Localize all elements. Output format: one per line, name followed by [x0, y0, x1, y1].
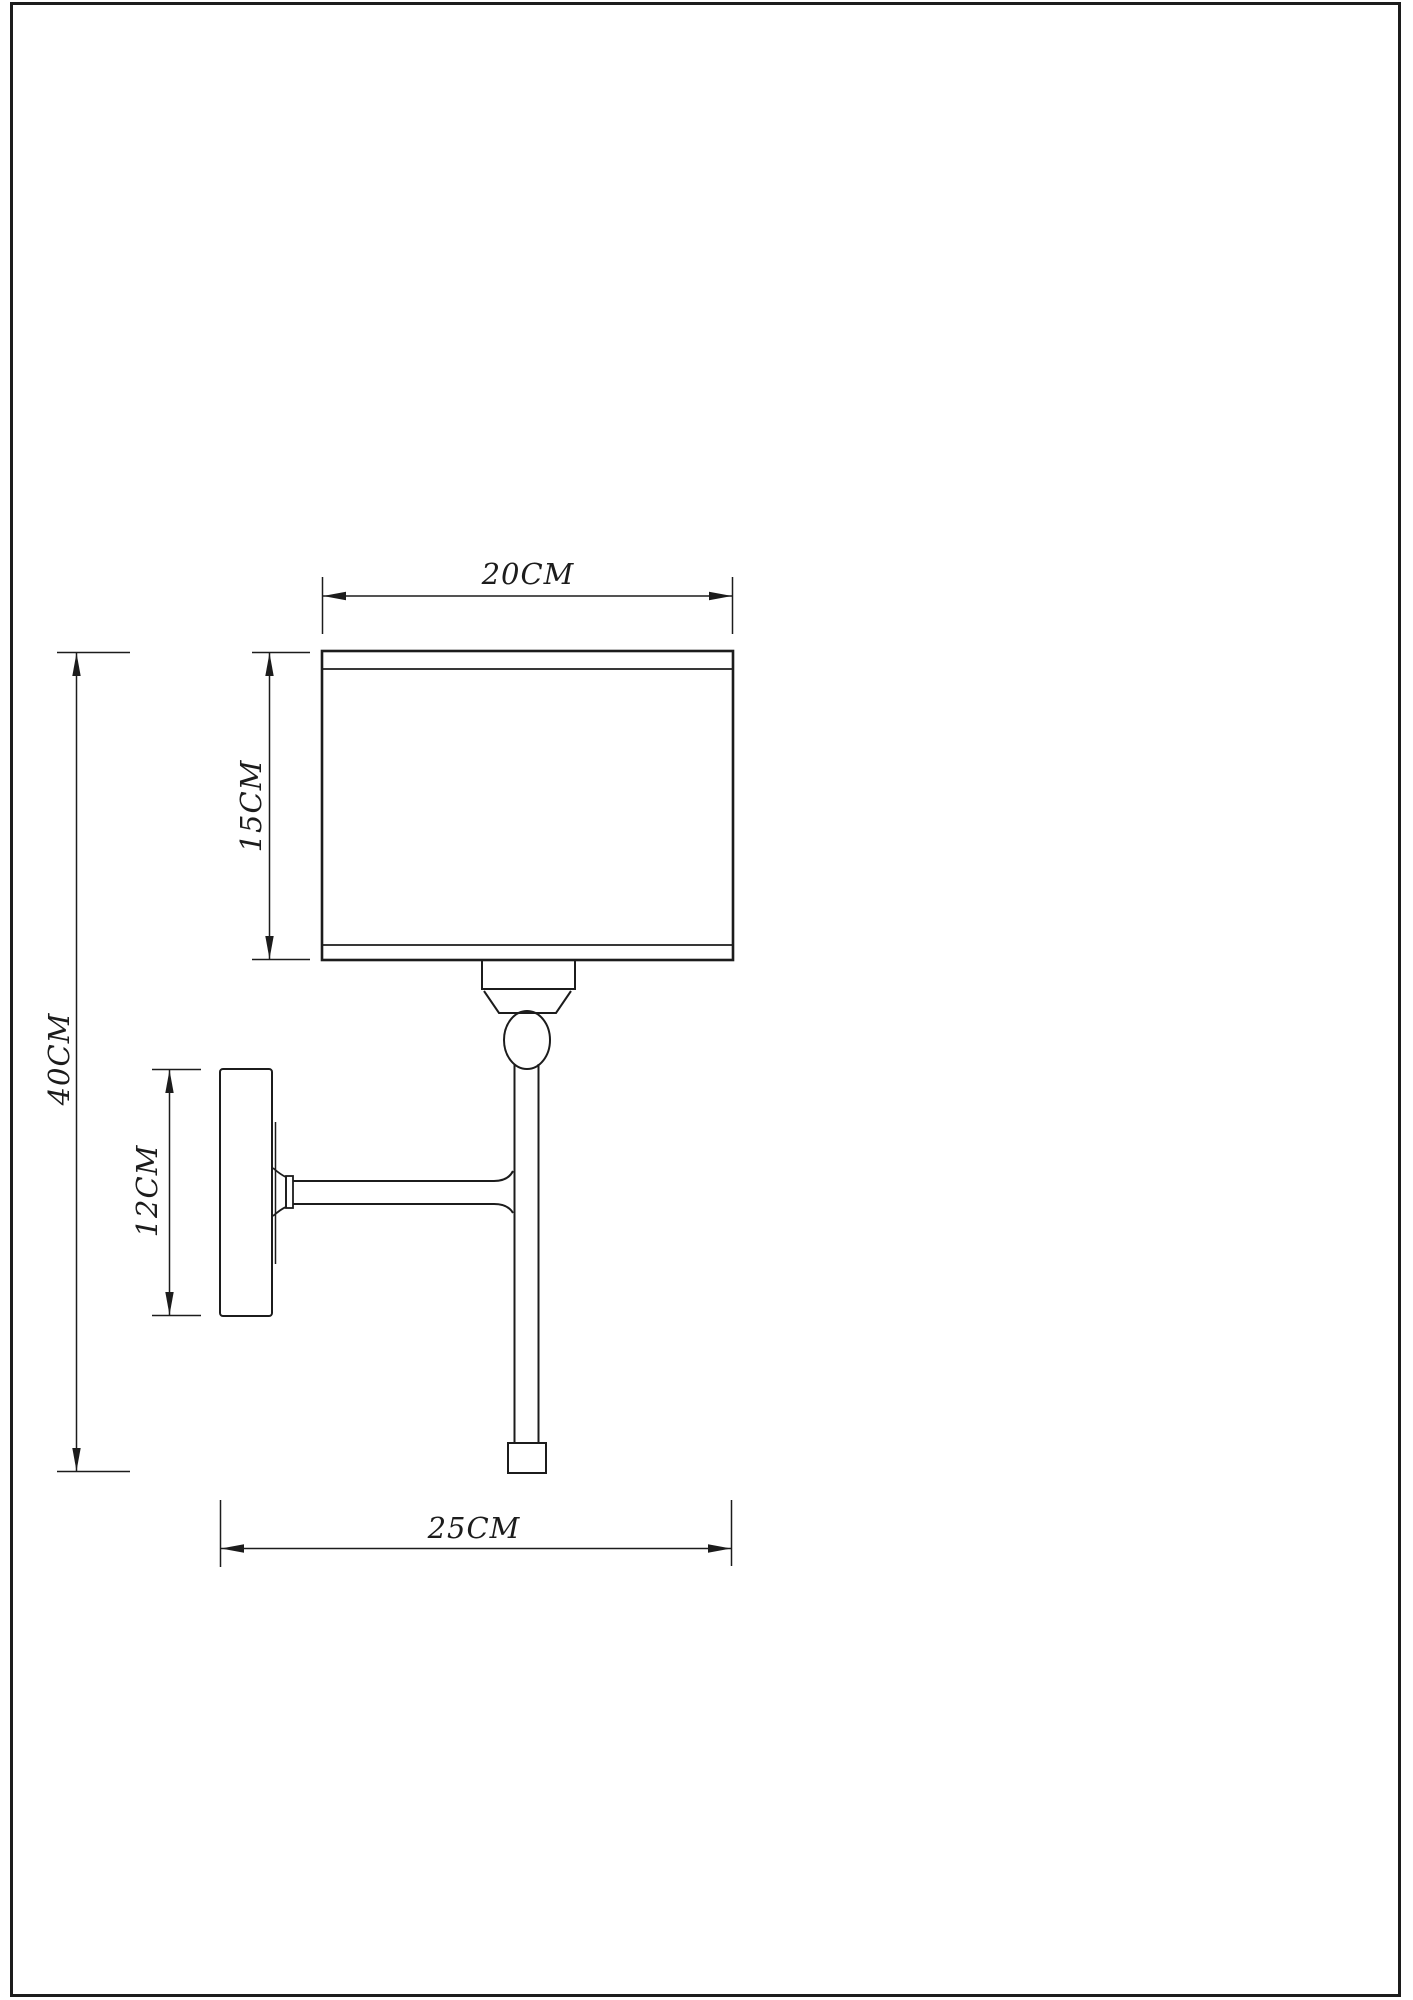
ball-joint	[504, 1011, 550, 1069]
dimension-label: 12CM	[130, 1144, 164, 1237]
arrowhead-top	[165, 1070, 173, 1093]
stem	[508, 1064, 546, 1473]
arm-bottom-edge	[293, 1204, 513, 1213]
arm-top-edge	[293, 1171, 513, 1181]
arrowhead-top	[72, 653, 80, 676]
socket-taper	[484, 991, 571, 1013]
lamp-shade	[322, 651, 733, 960]
arrowhead-bottom	[165, 1292, 173, 1315]
dimension-shade-width: 20CM	[323, 557, 733, 634]
wall-lamp-dimension-drawing: 20CM 15CM 40CM 12CM	[0, 0, 1413, 2000]
socket-cup	[482, 960, 575, 989]
dimension-backplate-height: 12CM	[130, 1070, 201, 1316]
page-border	[12, 4, 1400, 1996]
arm-collar	[286, 1176, 293, 1208]
technical-drawing-canvas: 20CM 15CM 40CM 12CM	[0, 0, 1413, 2000]
dimension-shade-height: 15CM	[234, 653, 310, 960]
backplate-outline	[220, 1069, 272, 1316]
dimension-total-height: 40CM	[42, 653, 130, 1472]
arrowhead-bottom	[72, 1448, 80, 1471]
stem-finial	[508, 1443, 546, 1473]
page-frame	[12, 4, 1400, 1996]
arrowhead-bottom	[265, 936, 273, 959]
lamp-shade-outline	[322, 651, 733, 960]
support-arm	[293, 1171, 513, 1213]
dimension-label: 15CM	[234, 759, 268, 852]
arrowhead-right	[709, 592, 732, 600]
dimension-label: 25CM	[427, 1511, 521, 1545]
arrowhead-top	[265, 653, 273, 676]
dimension-wall-projection: 25CM	[221, 1500, 732, 1567]
arrowhead-left	[221, 1544, 244, 1552]
arrowhead-left	[323, 592, 346, 600]
arrowhead-right	[708, 1544, 731, 1552]
wall-plate	[220, 1069, 293, 1316]
dimension-label: 20CM	[481, 557, 575, 591]
lamp-socket	[482, 960, 575, 1069]
dimension-label: 40CM	[42, 1012, 76, 1106]
